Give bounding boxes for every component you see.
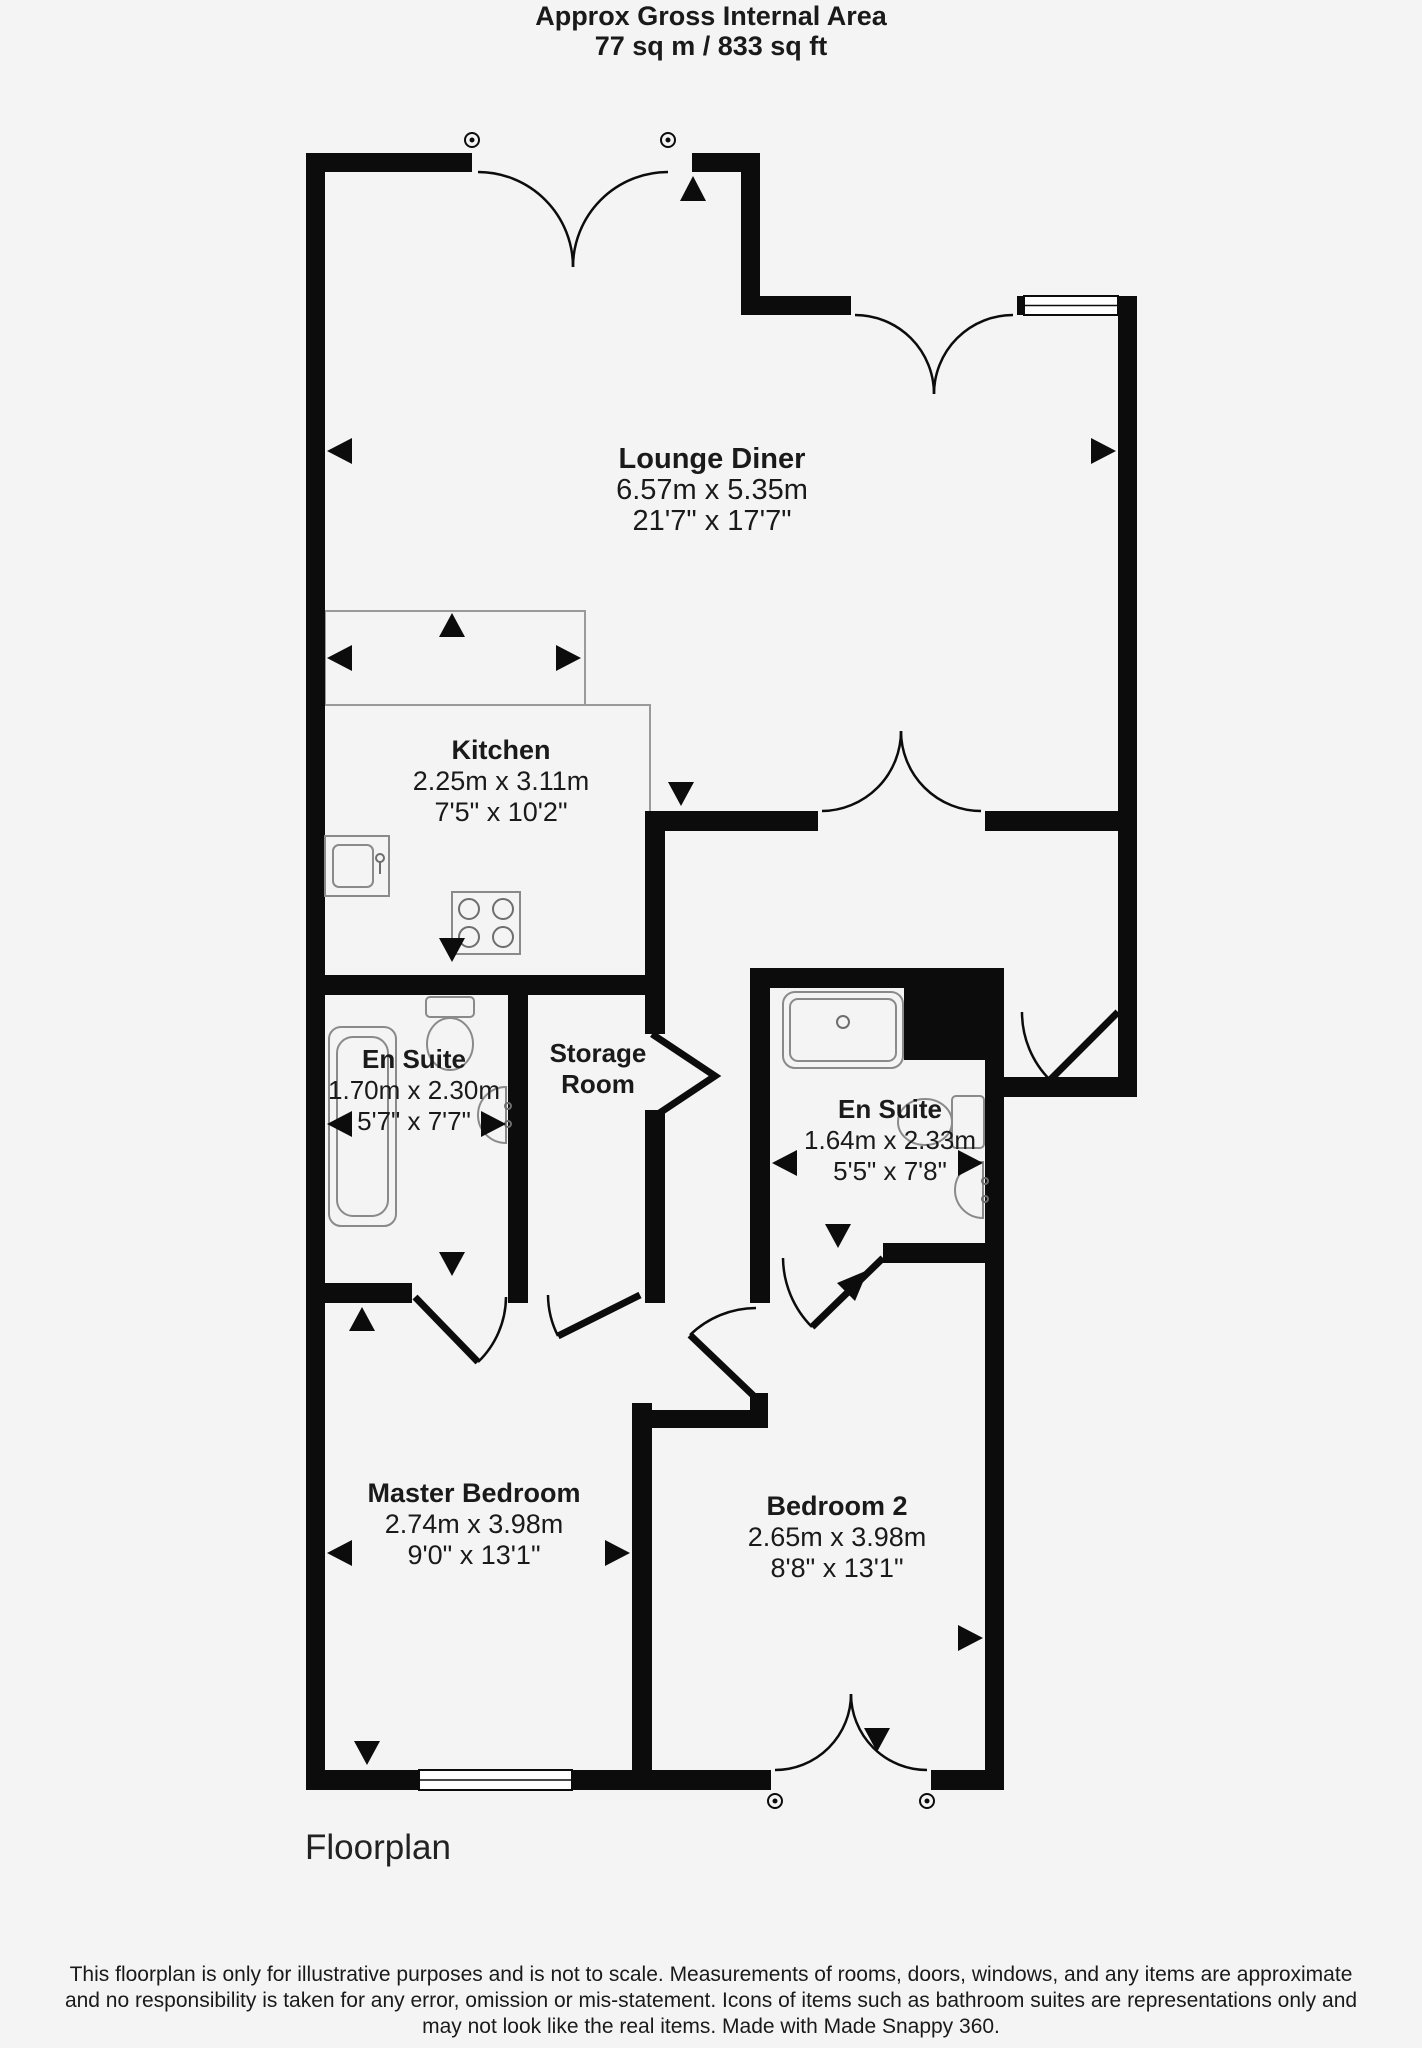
room-label-master-bedroom: Master Bedroom 2.74m x 3.98m 9'0" x 13'1…: [367, 1478, 580, 1571]
room-label-en-suite-2: En Suite 1.64m x 2.33m 5'5" x 7'8": [804, 1094, 976, 1187]
arrow-right-icon: [1091, 438, 1116, 464]
room-size-metric: 1.70m x 2.30m: [328, 1075, 500, 1106]
disclaimer-line: This floorplan is only for illustrative …: [0, 1962, 1422, 1988]
door-arc: [478, 1297, 506, 1362]
room-name: Storage Room: [518, 1038, 678, 1100]
room-label-bedroom-2: Bedroom 2 2.65m x 3.98m 8'8" x 13'1": [748, 1491, 927, 1584]
room-size-imperial: 21'7" x 17'7": [616, 506, 808, 537]
hinge-scroll-icon: [920, 1794, 934, 1808]
hinge-scroll-icon: [465, 133, 479, 147]
room-label-lounge-diner: Lounge Diner 6.57m x 5.35m 21'7" x 17'7": [616, 444, 808, 537]
door-arc: [855, 315, 934, 394]
door-arc: [851, 1694, 927, 1770]
arrow-up-icon: [349, 1307, 375, 1331]
room-size-metric: 2.25m x 3.11m: [413, 766, 590, 797]
disclaimer-line: and no responsibility is taken for any e…: [0, 1988, 1422, 2014]
arrow-down-icon: [439, 938, 465, 962]
arrow-left-icon: [327, 645, 352, 671]
room-size-imperial: 5'7" x 7'7": [328, 1106, 500, 1137]
door-leaf: [690, 1335, 758, 1400]
door-arc: [934, 315, 1013, 394]
window: [1024, 296, 1118, 315]
room-size-metric: 1.64m x 2.33m: [804, 1125, 976, 1156]
arrow-right-icon: [605, 1540, 630, 1566]
arrow-down-icon: [668, 782, 694, 806]
door-leaf: [558, 1295, 640, 1336]
arrow-down-icon: [354, 1741, 380, 1765]
room-label-storage-room: Storage Room: [518, 1038, 678, 1100]
room-name: Lounge Diner: [616, 444, 808, 475]
room-size-imperial: 5'5" x 7'8": [804, 1156, 976, 1187]
door-arc: [901, 731, 981, 811]
room-label-kitchen: Kitchen 2.25m x 3.11m 7'5" x 10'2": [413, 735, 590, 828]
arrow-up-icon: [439, 613, 465, 637]
disclaimer-line: may not look like the real items. Made w…: [0, 2014, 1422, 2040]
window: [419, 1770, 572, 1790]
room-size-imperial: 9'0" x 13'1": [367, 1540, 580, 1571]
door-leaf: [1050, 1012, 1118, 1080]
arrow-right-icon: [556, 645, 581, 671]
floorplan-caption: Floorplan: [305, 1828, 451, 1868]
room-name: Bedroom 2: [748, 1491, 927, 1522]
room-size-imperial: 8'8" x 13'1": [748, 1553, 927, 1584]
room-size-metric: 6.57m x 5.35m: [616, 475, 808, 506]
shower-icon: [783, 992, 903, 1068]
floorplan-drawing: [0, 0, 1422, 2048]
arrow-up-icon: [680, 176, 706, 201]
room-name: Kitchen: [413, 735, 590, 766]
kitchen-sink-icon: [325, 836, 389, 896]
hinge-scroll-icon: [768, 1794, 782, 1808]
door-arc: [478, 172, 573, 267]
door-arc: [822, 731, 901, 811]
room-name: En Suite: [804, 1094, 976, 1125]
door-arc: [548, 1295, 558, 1336]
room-name: En Suite: [328, 1044, 500, 1075]
room-size-metric: 2.74m x 3.98m: [367, 1509, 580, 1540]
arrow-down-icon: [825, 1224, 851, 1248]
arrow-right-icon: [958, 1625, 983, 1651]
room-size-metric: 2.65m x 3.98m: [748, 1522, 927, 1553]
door-arc: [690, 1308, 756, 1335]
hinge-scroll-icon: [661, 133, 675, 147]
door-leaf: [415, 1297, 478, 1362]
arrow-left-icon: [772, 1150, 797, 1176]
disclaimer-footer: This floorplan is only for illustrative …: [0, 1962, 1422, 2040]
room-label-en-suite-1: En Suite 1.70m x 2.30m 5'7" x 7'7": [328, 1044, 500, 1137]
hob-icon: [452, 892, 520, 954]
arrow-left-icon: [327, 1540, 352, 1566]
arrow-left-icon: [327, 438, 352, 464]
room-size-imperial: 7'5" x 10'2": [413, 797, 590, 828]
floorplan-page: Approx Gross Internal Area 77 sq m / 833…: [0, 0, 1422, 2048]
room-name: Master Bedroom: [367, 1478, 580, 1509]
service-shaft: [904, 988, 985, 1060]
arrow-down-icon: [439, 1252, 465, 1276]
door-arc: [573, 172, 668, 267]
door-arc: [775, 1694, 851, 1770]
door-arc: [783, 1258, 812, 1327]
door-arc: [1022, 1012, 1050, 1080]
